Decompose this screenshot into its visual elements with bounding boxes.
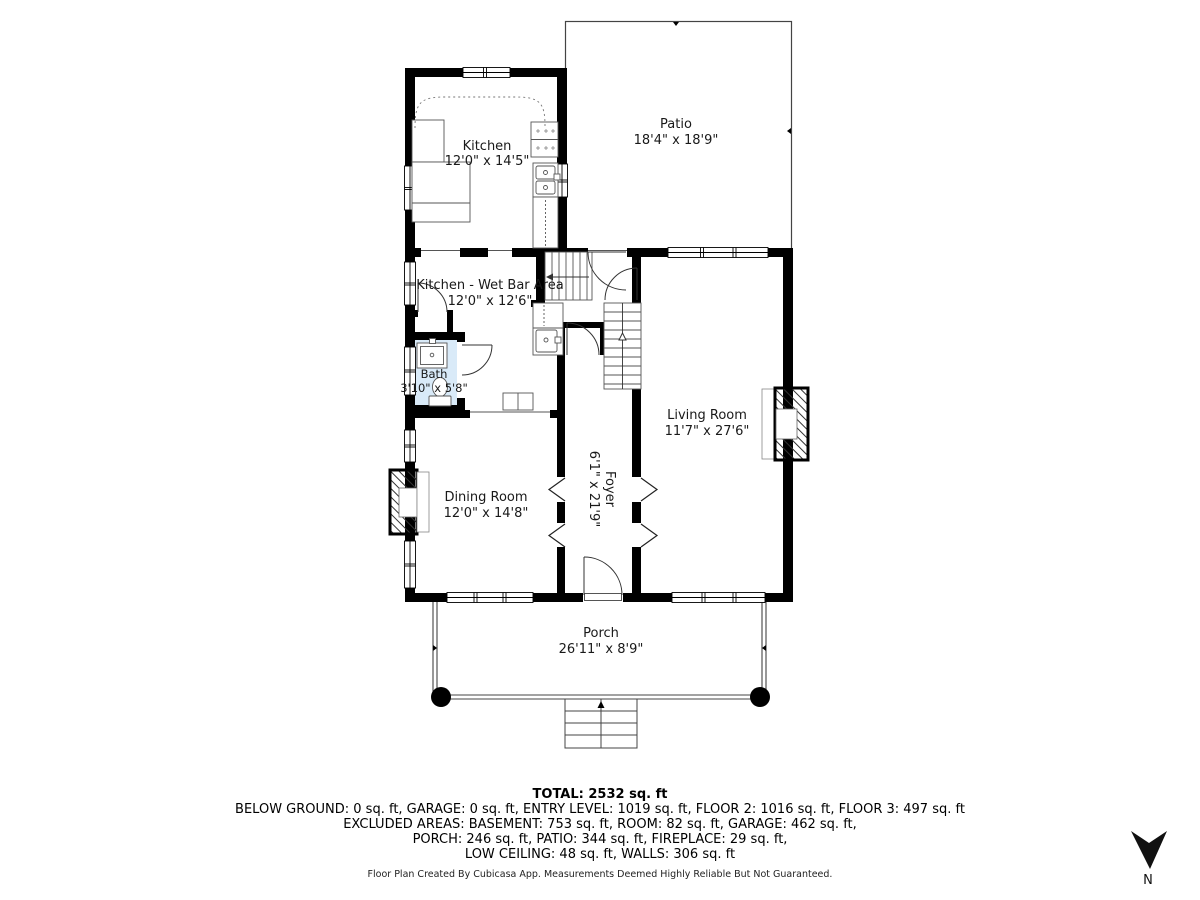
- label-wet-bar: Kitchen - Wet Bar Area: [416, 278, 563, 293]
- window: [447, 593, 533, 603]
- fireplace-right: [762, 388, 808, 460]
- door-arc: [584, 557, 622, 595]
- label-porch: Porch: [583, 626, 619, 641]
- porch-tick-left: [433, 645, 437, 651]
- floor-plan-canvas: Kitchen 12'0" x 14'5" Patio 18'4" x 18'9…: [0, 0, 1200, 900]
- porch-tick-right: [762, 645, 766, 651]
- porch-column: [431, 687, 451, 707]
- stairs-main: [604, 303, 641, 389]
- floor-plan-page: Kitchen 12'0" x 14'5" Patio 18'4" x 18'9…: [0, 0, 1200, 900]
- kitchen-stove: [531, 122, 558, 157]
- wet-bar-fixtures: [503, 303, 563, 410]
- dims-dining-room: 12'0" x 14'8": [444, 506, 529, 521]
- dims-bath: 3'10" x 5'8": [400, 381, 468, 395]
- dims-patio: 18'4" x 18'9": [634, 133, 719, 148]
- fireplace-left: [390, 470, 429, 534]
- dims-foyer: 6'1" x 21'9": [586, 451, 601, 527]
- label-kitchen: Kitchen: [463, 139, 512, 154]
- window: [672, 593, 765, 603]
- dims-kitchen: 12'0" x 14'5": [445, 154, 530, 169]
- patio-tick-right: [787, 128, 791, 134]
- window: [405, 262, 416, 305]
- porch-column: [750, 687, 770, 707]
- label-patio: Patio: [660, 117, 692, 132]
- label-dining-room: Dining Room: [444, 490, 527, 505]
- dims-living-room: 11'7" x 27'6": [665, 424, 750, 439]
- patio-tick-top: [673, 22, 679, 26]
- summary-line: PORCH: 246 sq. ft, PATIO: 344 sq. ft, FI…: [0, 832, 1200, 847]
- disclaimer: Floor Plan Created By Cubicasa App. Meas…: [0, 869, 1200, 880]
- door-arc: [588, 252, 626, 290]
- door-arc: [462, 345, 492, 375]
- kitchen-counter: [412, 162, 470, 222]
- window: [668, 248, 768, 258]
- fridge: [412, 120, 444, 162]
- label-bath: Bath: [421, 367, 448, 381]
- total-area: TOTAL: 2532 sq. ft: [0, 787, 1200, 802]
- summary-line: EXCLUDED AREAS: BASEMENT: 753 sq. ft, RO…: [0, 817, 1200, 832]
- window: [463, 68, 510, 78]
- bath-sink: [417, 339, 447, 369]
- kitchen-sink: [533, 163, 560, 197]
- window: [405, 430, 416, 462]
- label-living-room: Living Room: [667, 408, 747, 423]
- dims-wet-bar: 12'0" x 12'6": [448, 294, 533, 309]
- summary-line: BELOW GROUND: 0 sq. ft, GARAGE: 0 sq. ft…: [0, 802, 1200, 817]
- summary-line: LOW CEILING: 48 sq. ft, WALLS: 306 sq. f…: [0, 847, 1200, 862]
- kitchen-fixtures: [412, 97, 560, 248]
- area-summary: TOTAL: 2532 sq. ft BELOW GROUND: 0 sq. f…: [0, 787, 1200, 862]
- dims-porch: 26'11" x 8'9": [559, 642, 644, 657]
- wet-bar-sink: [536, 330, 561, 352]
- label-foyer: Foyer: [602, 471, 617, 508]
- window: [405, 541, 416, 588]
- bench: [503, 393, 533, 410]
